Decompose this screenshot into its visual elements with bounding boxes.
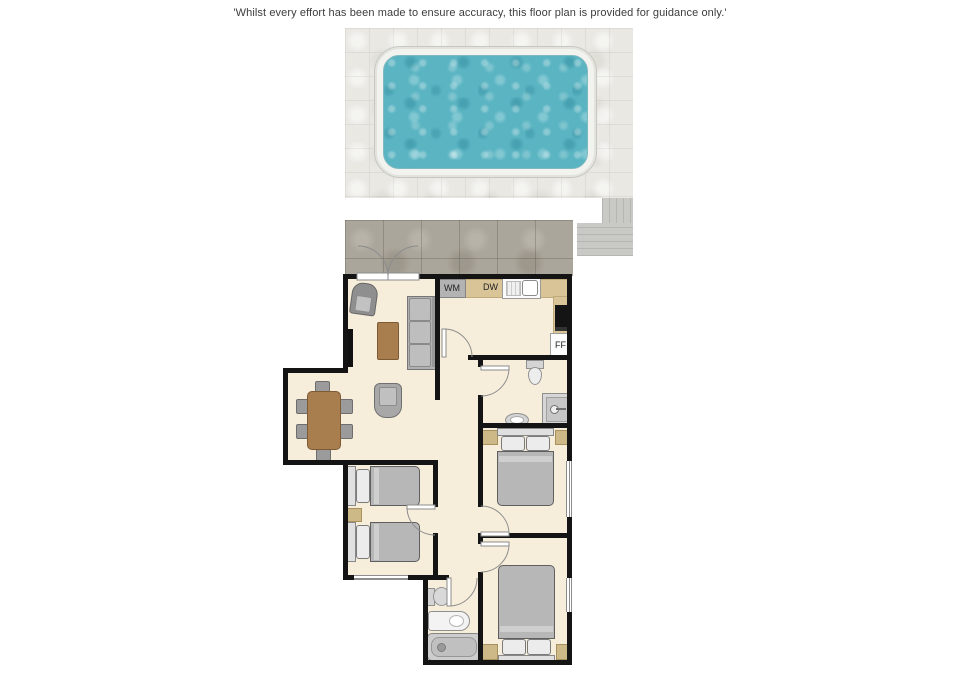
double-bed: [498, 565, 555, 662]
nightstand: [482, 644, 498, 660]
wall: [478, 423, 570, 428]
armchair: [374, 383, 402, 418]
bathtub-drain: [437, 643, 446, 652]
wall: [343, 460, 348, 580]
duvet-fold: [374, 468, 379, 504]
wall: [478, 355, 483, 367]
wall: [478, 572, 483, 665]
bed-pillow: [526, 436, 550, 451]
wall: [423, 575, 449, 580]
bed-pillow: [527, 639, 551, 655]
sink-drainer: [506, 281, 521, 296]
kitchen-sink: [502, 277, 541, 299]
dining-table: [307, 391, 341, 450]
bed-pillow: [502, 639, 526, 655]
basin: [428, 611, 470, 631]
bed-pillow: [356, 525, 370, 559]
single-bed: [346, 522, 420, 562]
terrace: [345, 220, 573, 276]
disclaimer-text: 'Whilst every effort has been made to en…: [0, 7, 960, 19]
steps: [577, 223, 633, 256]
wall: [283, 368, 348, 373]
shower-arm: [556, 408, 566, 410]
bed-pillow: [356, 469, 370, 503]
wall: [343, 274, 348, 373]
pool-water: [383, 55, 588, 169]
bed-duvet: [498, 565, 555, 639]
sofa-cushion: [409, 298, 431, 321]
bed-headboard: [497, 428, 554, 436]
wall: [435, 276, 440, 400]
tv: [348, 329, 353, 367]
wall: [283, 460, 438, 465]
sink-basin: [522, 280, 538, 296]
floorplan-page: 'Whilst every effort has been made to en…: [0, 0, 960, 679]
single-bed: [346, 466, 420, 506]
bed-duvet: [497, 451, 554, 506]
dishwasher-label: DW: [483, 283, 498, 292]
steps: [602, 198, 633, 223]
wall: [417, 274, 572, 279]
window: [566, 461, 572, 517]
fridge-freezer-label: FF: [555, 341, 566, 350]
wall: [433, 533, 438, 580]
nightstand: [482, 430, 498, 445]
bed-pillow: [501, 436, 525, 451]
window: [354, 575, 408, 580]
armchair-seat: [379, 387, 397, 406]
wall: [468, 355, 570, 360]
sofa-cushion: [409, 321, 431, 344]
wall: [478, 533, 570, 538]
armchair-seat: [354, 295, 372, 313]
double-bed: [497, 428, 554, 505]
bed-duvet: [370, 522, 420, 562]
washing-machine-label: WM: [444, 284, 460, 293]
armchair: [349, 281, 379, 316]
wall: [283, 368, 288, 465]
duvet-fold: [499, 456, 552, 462]
coffee-table: [377, 322, 399, 360]
duvet-fold: [500, 626, 553, 632]
duvet-fold: [374, 524, 379, 560]
wall: [433, 460, 438, 507]
wall: [423, 660, 572, 665]
bed-duvet: [370, 466, 420, 506]
sofa-cushion: [409, 344, 431, 367]
toilet: [433, 587, 450, 606]
basin-bowl: [449, 615, 464, 627]
wall: [423, 575, 428, 665]
nightstand: [346, 508, 362, 522]
bathtub: [427, 633, 481, 661]
washing-machine: WM: [438, 279, 466, 298]
window: [566, 578, 572, 612]
wall: [478, 395, 483, 507]
